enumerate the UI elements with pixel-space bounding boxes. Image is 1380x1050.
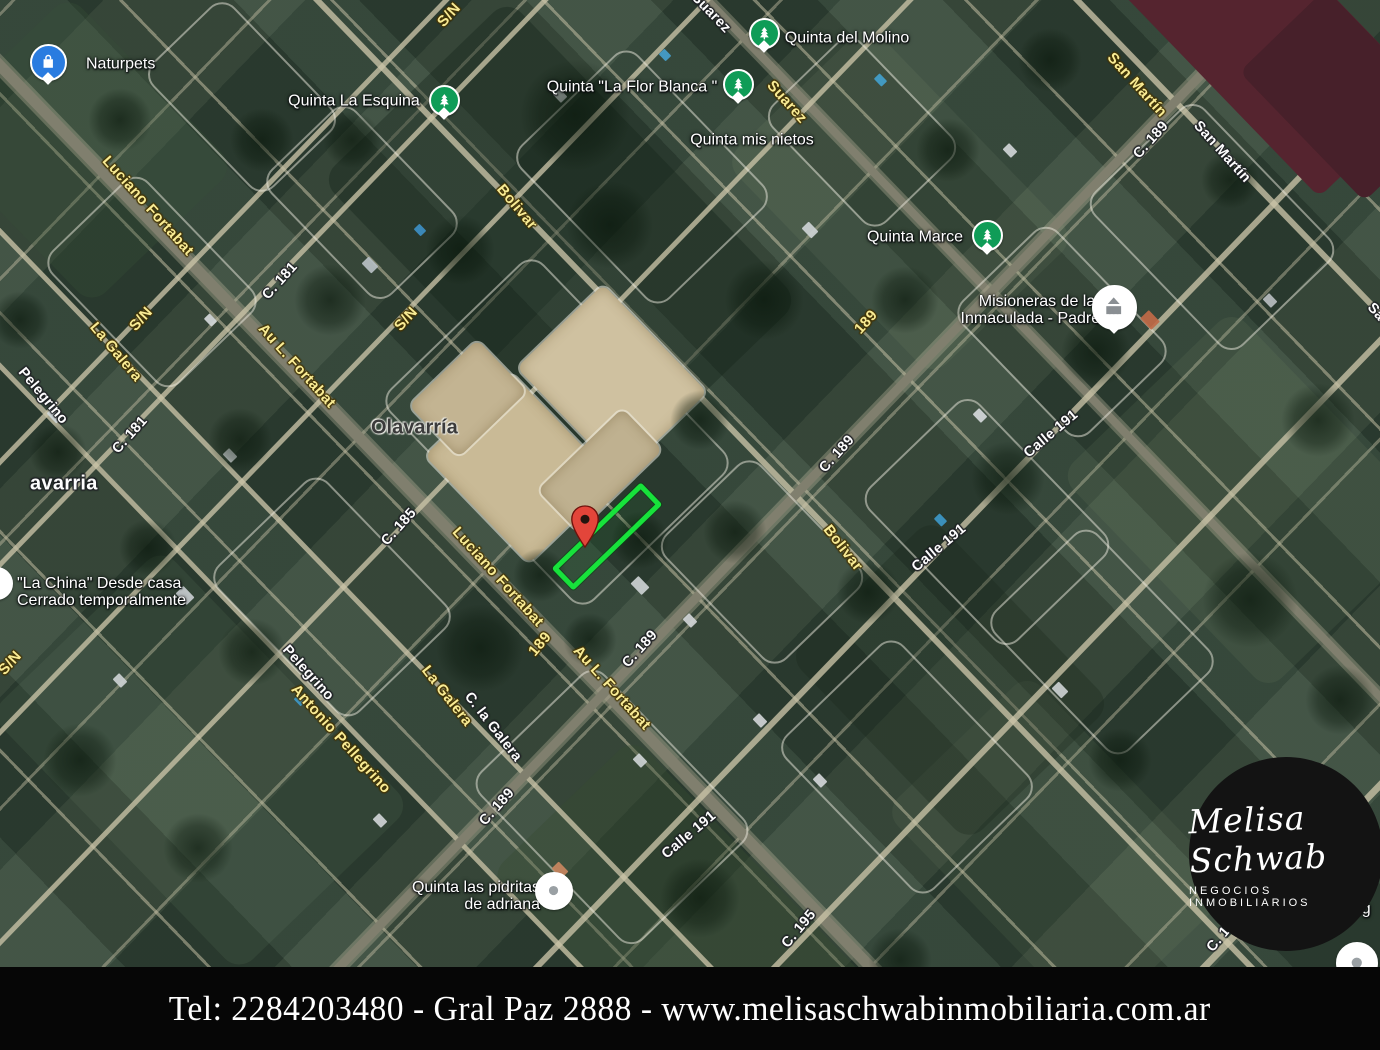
map-tree [43,723,117,797]
church-icon[interactable] [1092,285,1137,330]
brand-tagline: NEGOCIOS INMOBILIARIOS [1189,885,1380,909]
map-tree [1018,28,1082,92]
map-tree [836,560,900,624]
poi-label[interactable]: "La China" Desde casaCerrado temporalmen… [17,575,186,609]
map-tree [294,264,366,336]
map-tree [230,108,294,172]
map-tree [1305,665,1375,735]
poi-label[interactable]: Quinta La Esquina [288,93,420,110]
poi-label[interactable]: Quinta "La Flor Blanca " [547,79,718,96]
map-tree [724,260,804,340]
map-tree [519,59,631,171]
brand-logo: Melisa Schwab NEGOCIOS INMOBILIARIOS [1189,757,1380,951]
map-tree [425,215,495,285]
map-tree [218,618,285,685]
poi-label[interactable]: Quinta Marce [867,229,963,246]
tree-icon[interactable] [723,69,754,100]
map-tree [88,88,152,152]
poi-label[interactable]: Naturpets [86,56,155,73]
tree-icon[interactable] [749,18,780,49]
location-pin-icon[interactable] [567,504,603,550]
map-tree [566,181,654,269]
shop-icon[interactable] [30,44,67,81]
map-tree [1202,552,1298,648]
map-tree [660,858,740,938]
tree-icon[interactable] [429,85,460,116]
map-tree [119,519,177,577]
footer-bar: Tel: 2284203480 - Gral Paz 2888 - www.me… [0,967,1380,1050]
map-tree [1281,383,1355,457]
map-tree [323,111,381,169]
locality-label: Olavarría [371,417,458,440]
map-tree [436,604,524,692]
brand-name: Melisa Schwab [1188,796,1380,881]
map-tree [208,408,272,472]
map-tree [916,118,980,182]
locality-label: avarria [30,473,98,496]
poi-label[interactable]: Misioneras de laInmaculada - Padre... [961,293,1114,327]
poi-label[interactable]: Quinta del Molino [785,30,910,47]
footer-contact-text: Tel: 2284203480 - Gral Paz 2888 - www.me… [169,989,1211,1029]
poi-label[interactable]: Quinta mis nietos [690,132,814,149]
map-tree [871,266,938,333]
dot-icon[interactable] [535,872,573,910]
map-tree [163,813,233,883]
poi-label[interactable]: Quinta las pidritasde adriana [412,879,540,913]
map-tree [703,500,767,564]
satellite-map: SuarezPelegrinoPelegrinoC. 181C. 181C. 1… [0,0,1380,967]
tree-icon[interactable] [972,220,1003,251]
property-flyer: SuarezPelegrinoPelegrinoC. 181C. 181C. 1… [0,0,1380,1050]
map-tree [1088,728,1152,792]
